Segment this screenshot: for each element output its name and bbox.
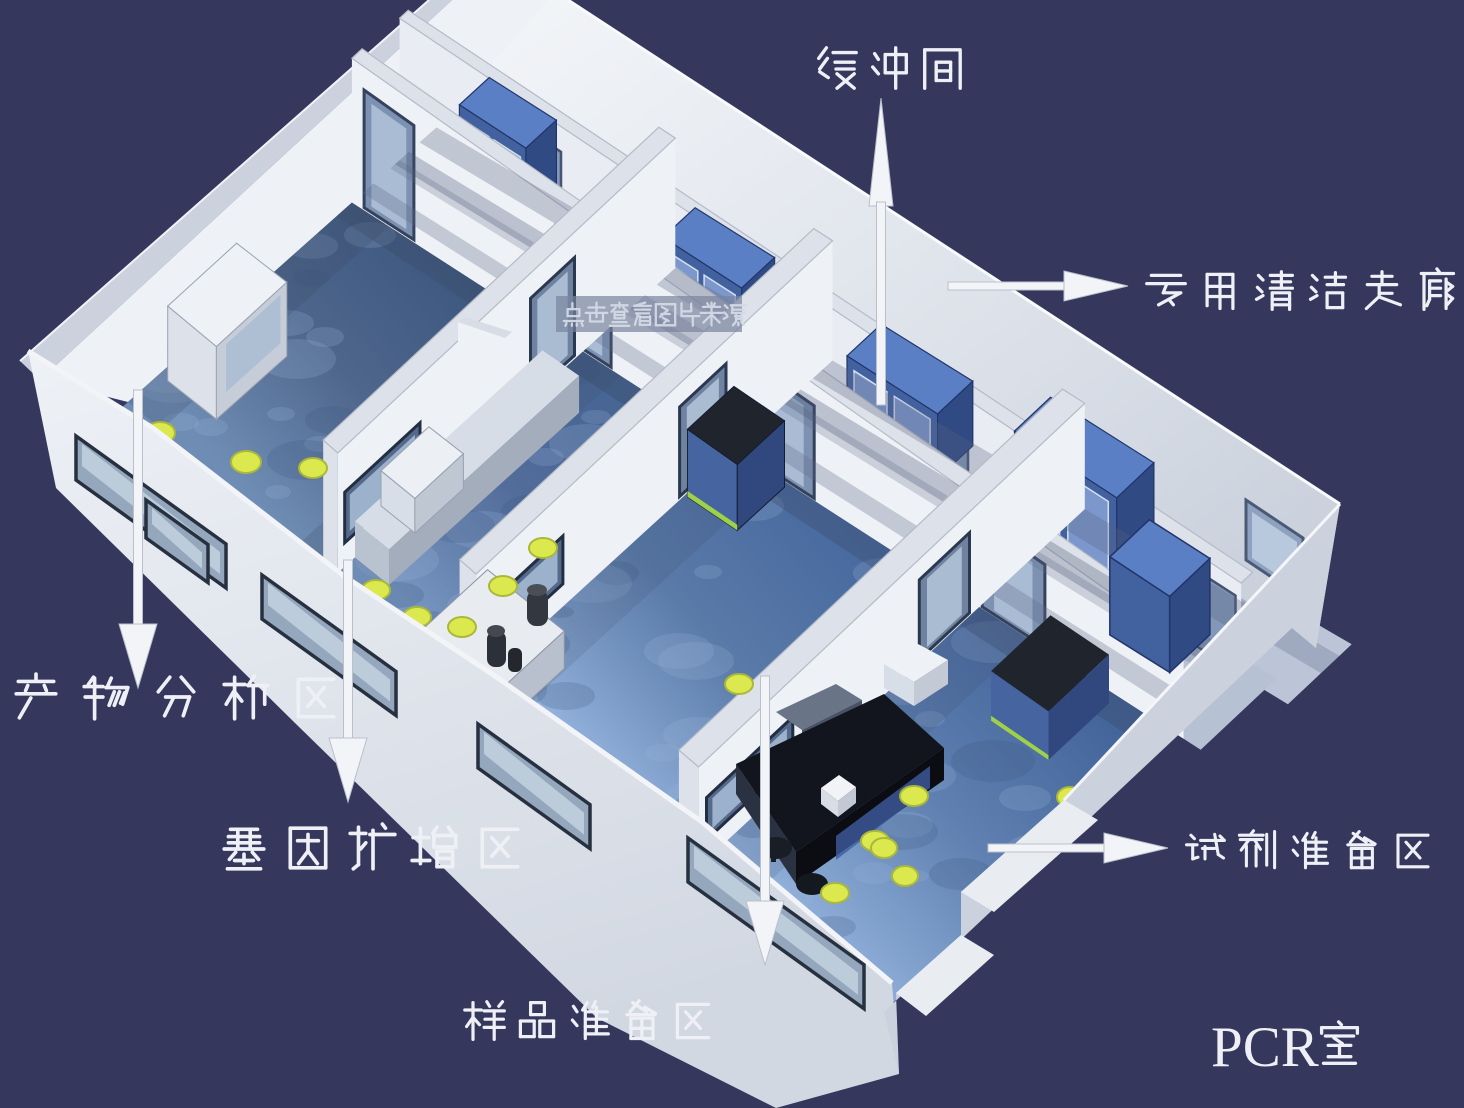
svg-text:PCR: PCR (1211, 1016, 1319, 1079)
